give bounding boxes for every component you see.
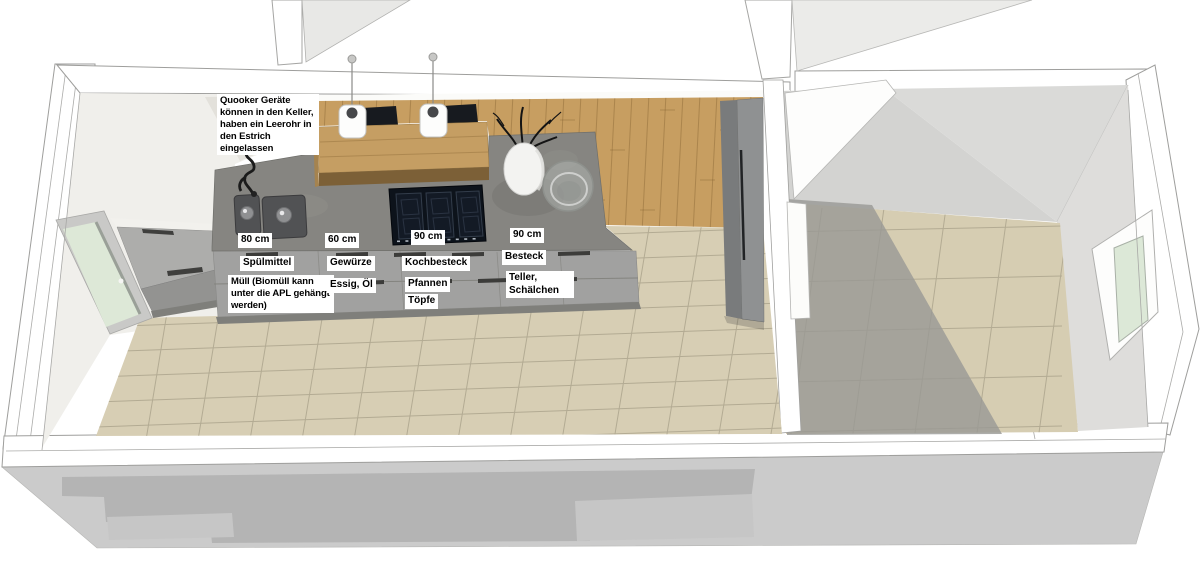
cooktop-control-dash — [456, 239, 459, 241]
cooktop-control-dash — [397, 241, 400, 243]
pendant-ceiling-mount — [348, 55, 356, 63]
sink-drain — [241, 207, 254, 220]
annotation-zone-sink-width: 80 cm — [238, 233, 272, 248]
glass-bowl-bottom — [557, 181, 581, 201]
annotation-drawer-teller: Teller, Schälchen — [506, 271, 574, 298]
pendant-ceiling-mount — [429, 53, 437, 61]
pendant-light-1-socket — [347, 108, 358, 119]
annotation-zone-island-width: 90 cm — [510, 228, 544, 243]
right-room — [763, 80, 1158, 440]
foundation-light-step — [575, 494, 754, 541]
upper-wall-cut-left — [302, 0, 410, 62]
scene-render — [0, 0, 1200, 579]
tall-cabinet — [720, 98, 764, 330]
annotation-drawer-toepfe: Töpfe — [405, 294, 438, 309]
kitchen-planner-viewport[interactable]: Quooker Geräte können in den Keller, hab… — [0, 0, 1200, 579]
left-window-handle — [119, 279, 124, 284]
doorway-jamb — [787, 202, 810, 319]
cooktop-control-dash — [405, 240, 408, 242]
annotation-quooker-note: Quooker Geräte können in den Keller, hab… — [217, 94, 319, 155]
upper-wall-column-right — [745, 0, 792, 79]
sink-drain — [277, 208, 292, 223]
upper-wall-cut-right — [792, 0, 1032, 71]
pendant-light-2-socket — [428, 107, 439, 118]
annotation-drawer-muell: Müll (Biomüll kann unter die APL gehängt… — [228, 275, 334, 313]
cooktop-control-dash — [447, 239, 450, 241]
annotation-drawer-besteck: Besteck — [502, 250, 546, 265]
sink-drain-highlight — [280, 211, 285, 216]
cooktop-control-dash — [464, 238, 467, 240]
annotation-zone-cooktop-width: 90 cm — [411, 230, 445, 245]
upper-wall-column-left — [272, 0, 302, 65]
faucet-base — [251, 191, 257, 197]
foundation-light-step — [107, 513, 234, 540]
bar-placemat — [362, 106, 398, 127]
annotation-drawer-gewuerze: Gewürze — [327, 256, 375, 271]
cooktop-control-dash — [473, 238, 476, 240]
annotation-drawer-pfannen: Pfannen — [405, 277, 450, 292]
annotation-drawer-spuelmittel: Spülmittel — [240, 256, 294, 271]
annotation-drawer-kochbesteck: Kochbesteck — [402, 256, 470, 271]
foundation — [2, 452, 1163, 548]
sink-drain-highlight — [243, 209, 247, 213]
annotation-drawer-essig-oel: Essig, Öl — [327, 278, 376, 293]
annotation-zone-spices-width: 60 cm — [325, 233, 359, 248]
